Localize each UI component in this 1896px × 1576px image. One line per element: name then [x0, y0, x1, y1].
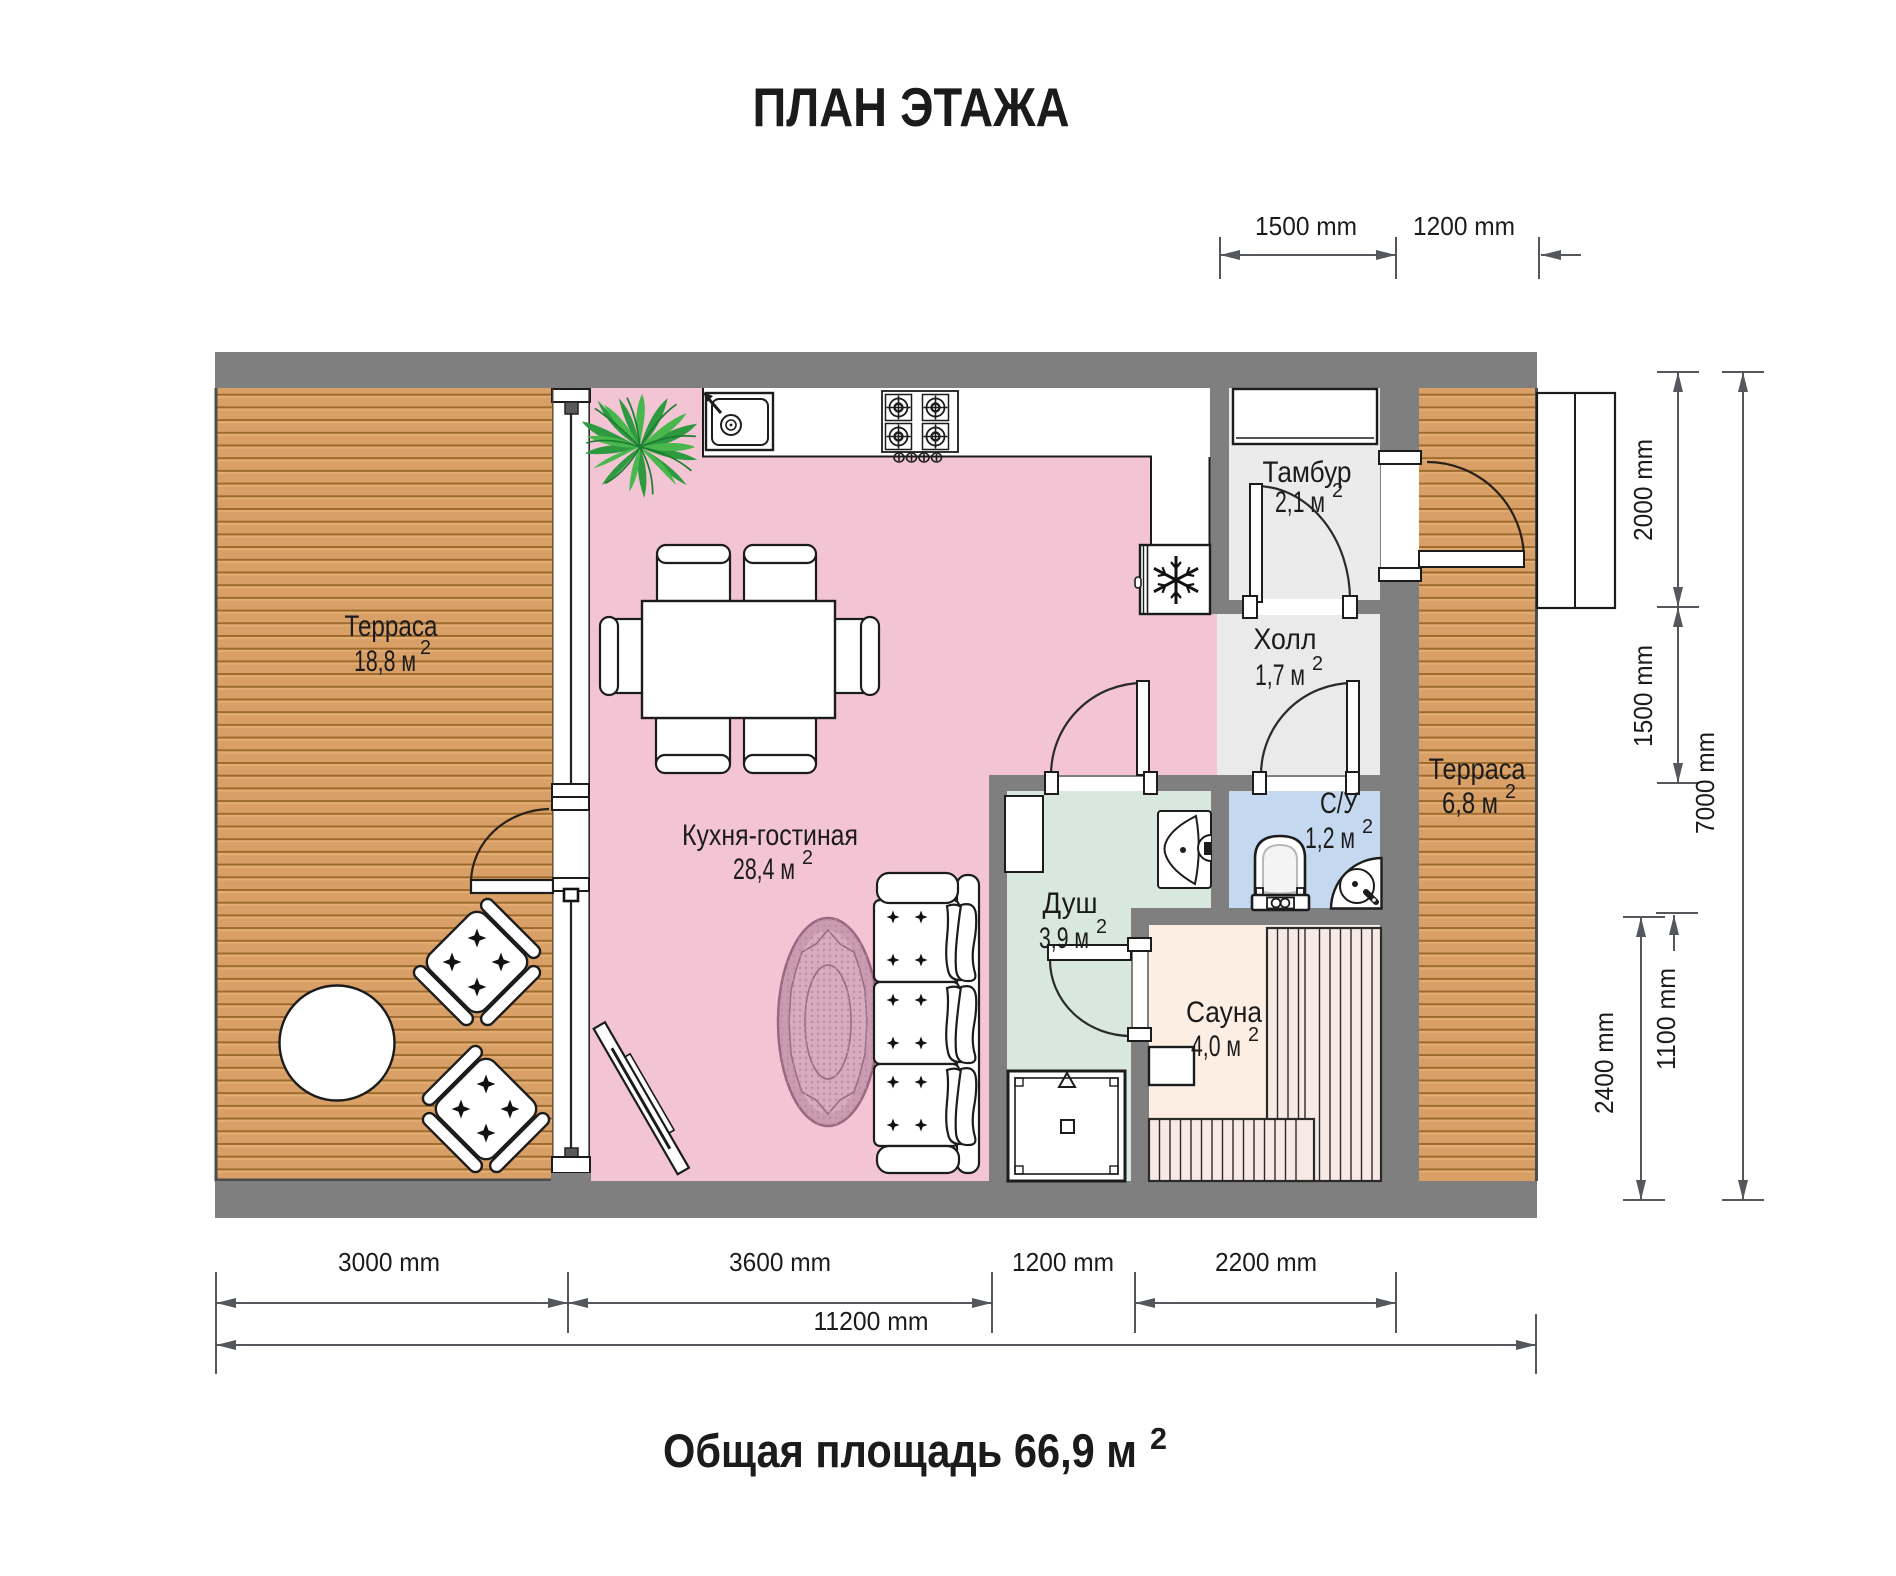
svg-text:2: 2	[1362, 816, 1373, 838]
svg-text:3000 mm: 3000 mm	[338, 1247, 440, 1277]
svg-text:28,4 м: 28,4 м	[733, 853, 795, 886]
svg-text:2000 mm: 2000 mm	[1628, 439, 1658, 541]
svg-text:С/У: С/У	[1320, 787, 1359, 820]
svg-text:Душ: Душ	[1043, 887, 1098, 920]
svg-text:Общая площадь 66,9 м: Общая площадь 66,9 м	[663, 1424, 1137, 1477]
svg-text:2: 2	[1248, 1024, 1259, 1046]
svg-text:1,7 м: 1,7 м	[1255, 659, 1305, 692]
svg-text:3600 mm: 3600 mm	[729, 1247, 831, 1277]
svg-text:Холл: Холл	[1254, 623, 1317, 656]
svg-text:1500 mm: 1500 mm	[1255, 211, 1357, 241]
svg-text:Кухня-гостиная: Кухня-гостиная	[682, 819, 858, 852]
svg-text:2: 2	[1096, 916, 1107, 938]
svg-text:1100 mm: 1100 mm	[1651, 968, 1681, 1070]
svg-text:6,8 м: 6,8 м	[1442, 787, 1498, 820]
svg-text:2400 mm: 2400 mm	[1589, 1012, 1619, 1114]
svg-text:2,1 м: 2,1 м	[1275, 486, 1325, 519]
svg-text:2: 2	[420, 637, 431, 659]
svg-text:7000 mm: 7000 mm	[1690, 732, 1720, 834]
svg-text:2: 2	[1312, 653, 1323, 675]
svg-text:3,9 м: 3,9 м	[1039, 922, 1089, 955]
svg-text:1200 mm: 1200 mm	[1413, 211, 1515, 241]
svg-text:2: 2	[1332, 480, 1343, 502]
svg-text:1,2 м: 1,2 м	[1305, 822, 1355, 855]
svg-text:2: 2	[802, 847, 813, 869]
svg-text:18,8 м: 18,8 м	[354, 645, 416, 678]
svg-text:2200 mm: 2200 mm	[1215, 1247, 1317, 1277]
svg-text:1500 mm: 1500 mm	[1628, 645, 1658, 747]
svg-text:2: 2	[1150, 1421, 1167, 1456]
svg-text:ПЛАН ЭТАЖА: ПЛАН ЭТАЖА	[753, 76, 1070, 138]
svg-text:2: 2	[1505, 781, 1516, 803]
svg-text:4,0 м: 4,0 м	[1191, 1030, 1241, 1063]
svg-text:11200 mm: 11200 mm	[814, 1306, 929, 1336]
svg-text:1200 mm: 1200 mm	[1012, 1247, 1114, 1277]
